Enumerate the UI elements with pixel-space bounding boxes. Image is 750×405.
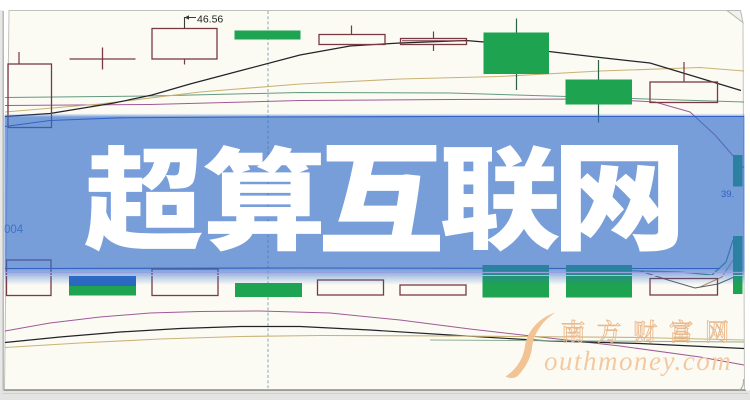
svg-text:46.56: 46.56 xyxy=(197,14,223,26)
svg-text:39.: 39. xyxy=(721,189,734,200)
svg-text:outhmoney.com: outhmoney.com xyxy=(544,346,732,376)
svg-text:004: 004 xyxy=(4,224,24,236)
